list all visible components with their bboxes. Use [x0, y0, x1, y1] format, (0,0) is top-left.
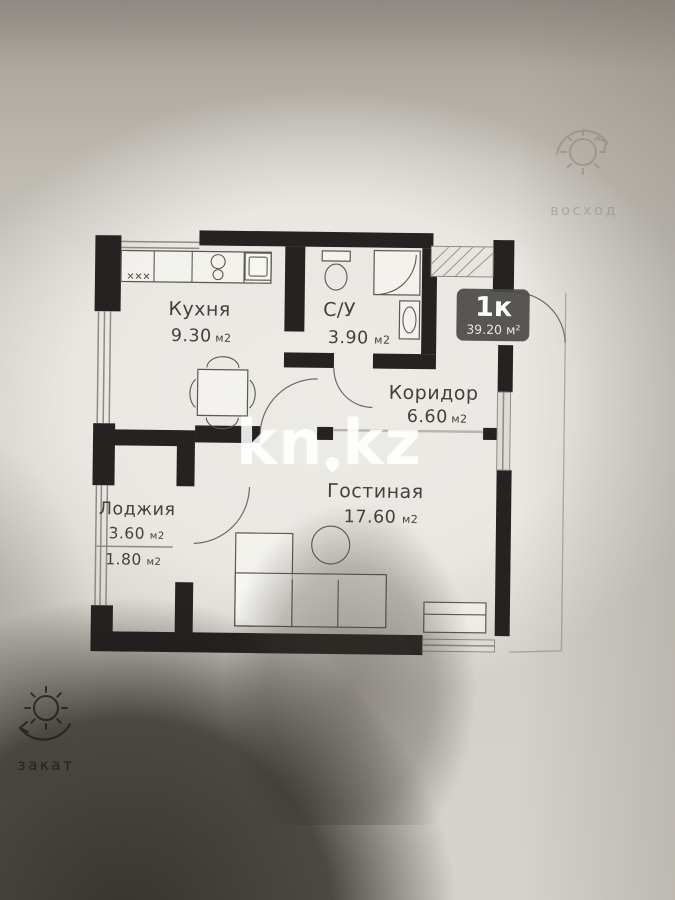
loggia-area-unit: м2 — [150, 531, 165, 542]
loggia-area-divider — [97, 546, 173, 547]
entry-shaft-hatch — [431, 246, 493, 277]
kitchen-area-unit: м2 — [215, 332, 231, 345]
apartment-badge: 1к 39.20 м² — [456, 289, 530, 342]
watermark-pin-icon — [324, 454, 342, 472]
living-room-area: 17.60 — [344, 507, 397, 528]
corridor-label: Коридор — [389, 382, 479, 405]
tv-stand — [424, 602, 486, 633]
sofa — [235, 573, 387, 628]
floorplan-photo: Кухня 9.30 м2 С/У 3.90 м2 Коридор 6.60 м… — [0, 0, 675, 900]
living-room-fixtures — [235, 525, 487, 633]
corridor-area-unit: м2 — [451, 412, 467, 425]
sunset-label: закат — [18, 756, 75, 774]
loggia-label: Лоджия — [99, 499, 176, 520]
sunrise-icon — [557, 130, 607, 174]
watermark-part2: kz — [342, 412, 421, 474]
round-rug — [311, 526, 349, 564]
toilet — [322, 251, 350, 261]
sunset-icon — [20, 687, 70, 740]
bathroom-fixtures — [321, 250, 420, 339]
sunrise-label: восход — [550, 203, 618, 219]
loggia-area-reduced-unit: м2 — [146, 557, 161, 568]
badge-total-area: 39.20 м² — [466, 322, 520, 338]
bathroom-area-unit: м2 — [374, 334, 390, 347]
loggia-area-reduced: 1.80 — [105, 550, 142, 568]
badge-rooms-count: 1к — [475, 292, 513, 323]
kitchen-area: 9.30 — [171, 326, 212, 346]
kitchen-label: Кухня — [168, 298, 231, 321]
bathroom-label: С/У — [323, 299, 356, 321]
bathroom-area: 3.90 — [328, 328, 369, 348]
living-room-label: Гостиная — [327, 480, 424, 503]
living-room-area-unit: м2 — [402, 513, 418, 526]
watermark-part1: kn — [236, 412, 323, 474]
kn-kz-watermark: knkz — [236, 412, 422, 474]
loggia-area: 3.60 — [108, 524, 145, 542]
